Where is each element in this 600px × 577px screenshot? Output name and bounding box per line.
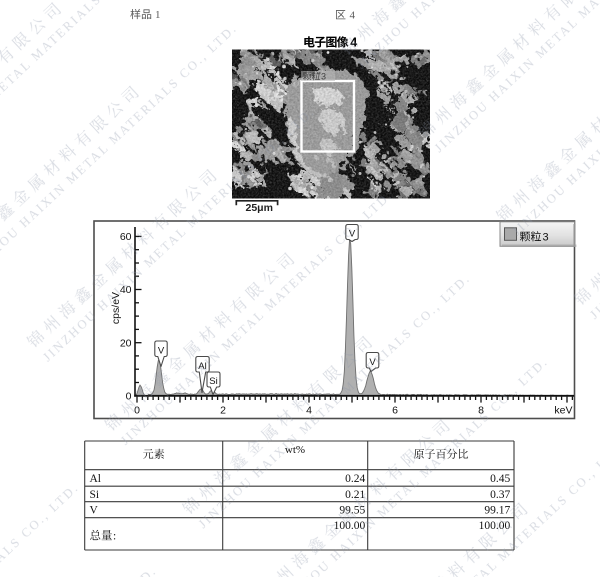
- svg-text:60: 60: [120, 231, 132, 243]
- svg-text:3: 3: [321, 72, 326, 82]
- svg-text:V: V: [90, 505, 99, 517]
- svg-text:0: 0: [126, 390, 132, 402]
- svg-text:4: 4: [350, 10, 356, 22]
- svg-text:Si: Si: [90, 489, 100, 501]
- svg-text:Al: Al: [90, 473, 102, 485]
- svg-text:Si: Si: [209, 376, 217, 387]
- svg-text:2: 2: [220, 405, 226, 417]
- svg-text:20: 20: [120, 337, 132, 349]
- svg-text:0.37: 0.37: [490, 489, 510, 501]
- svg-text:99.17: 99.17: [484, 505, 510, 517]
- svg-text:1: 1: [155, 9, 161, 21]
- svg-text:3: 3: [543, 232, 549, 244]
- svg-text:V: V: [158, 345, 165, 356]
- svg-text:0.45: 0.45: [490, 473, 510, 485]
- svg-text:keV: keV: [554, 405, 572, 417]
- svg-text:6: 6: [392, 405, 398, 417]
- svg-text:25μm: 25μm: [246, 202, 273, 214]
- svg-text:0.24: 0.24: [345, 473, 365, 485]
- svg-text::: :: [113, 531, 116, 543]
